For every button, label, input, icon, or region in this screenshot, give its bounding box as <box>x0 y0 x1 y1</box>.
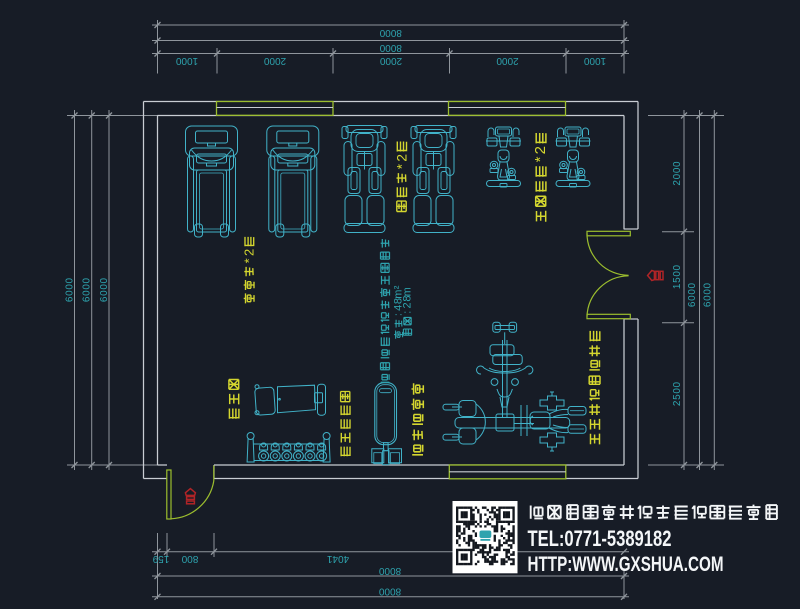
svg-text:0: 0 <box>672 388 683 394</box>
svg-text:0: 0 <box>82 290 93 296</box>
svg-text:2: 2 <box>672 180 683 186</box>
svg-text:HTTP:WWW.GXSHUA.COM: HTTP:WWW.GXSHUA.COM <box>528 553 724 576</box>
svg-text:8000: 8000 <box>378 565 401 576</box>
svg-text:0: 0 <box>65 277 76 283</box>
svg-text:5: 5 <box>672 277 683 283</box>
svg-text:0: 0 <box>65 284 76 290</box>
svg-text:159: 159 <box>152 553 169 564</box>
svg-text:6: 6 <box>703 301 714 307</box>
svg-text:0: 0 <box>703 289 714 295</box>
svg-text:0: 0 <box>672 161 683 167</box>
svg-text:*: * <box>394 163 410 169</box>
svg-text:0: 0 <box>672 173 683 179</box>
svg-text:0: 0 <box>703 295 714 301</box>
svg-text:2: 2 <box>402 302 414 308</box>
svg-text:0: 0 <box>65 290 76 296</box>
svg-text:0: 0 <box>687 295 698 301</box>
svg-text:2000: 2000 <box>496 55 519 66</box>
svg-text:5: 5 <box>672 394 683 400</box>
svg-text:0: 0 <box>687 282 698 288</box>
svg-text:0: 0 <box>672 264 683 270</box>
svg-text:1: 1 <box>672 283 683 289</box>
svg-text:6: 6 <box>687 301 698 307</box>
svg-text:6: 6 <box>65 296 76 302</box>
svg-text:*: * <box>242 258 257 263</box>
svg-text::: : <box>402 311 414 314</box>
svg-text:0: 0 <box>703 282 714 288</box>
svg-text:m: m <box>402 287 414 296</box>
svg-text:2000: 2000 <box>379 55 402 66</box>
svg-text:2: 2 <box>394 154 410 162</box>
svg-text:0: 0 <box>99 290 110 296</box>
svg-text:8000: 8000 <box>379 27 402 38</box>
svg-text:6: 6 <box>99 296 110 302</box>
svg-text:8000: 8000 <box>378 586 401 597</box>
svg-text:4041: 4041 <box>326 553 349 564</box>
svg-text:2: 2 <box>672 400 683 406</box>
svg-text:0: 0 <box>687 289 698 295</box>
svg-text:0: 0 <box>82 277 93 283</box>
svg-text:2000: 2000 <box>263 55 286 66</box>
svg-text:800: 800 <box>181 553 198 564</box>
svg-text:0: 0 <box>99 277 110 283</box>
svg-text:2: 2 <box>242 249 257 256</box>
svg-text:8000: 8000 <box>379 42 402 53</box>
svg-text:*: * <box>532 156 549 162</box>
svg-text:0: 0 <box>99 284 110 290</box>
svg-text:0: 0 <box>82 284 93 290</box>
svg-text:1000: 1000 <box>583 55 606 66</box>
svg-text:0: 0 <box>672 271 683 277</box>
svg-text:0: 0 <box>672 167 683 173</box>
svg-text:1000: 1000 <box>175 55 198 66</box>
svg-text:0: 0 <box>672 381 683 387</box>
svg-text:6: 6 <box>82 296 93 302</box>
svg-text:TEL:0771-5389182: TEL:0771-5389182 <box>528 526 672 551</box>
svg-text:2: 2 <box>532 146 549 154</box>
